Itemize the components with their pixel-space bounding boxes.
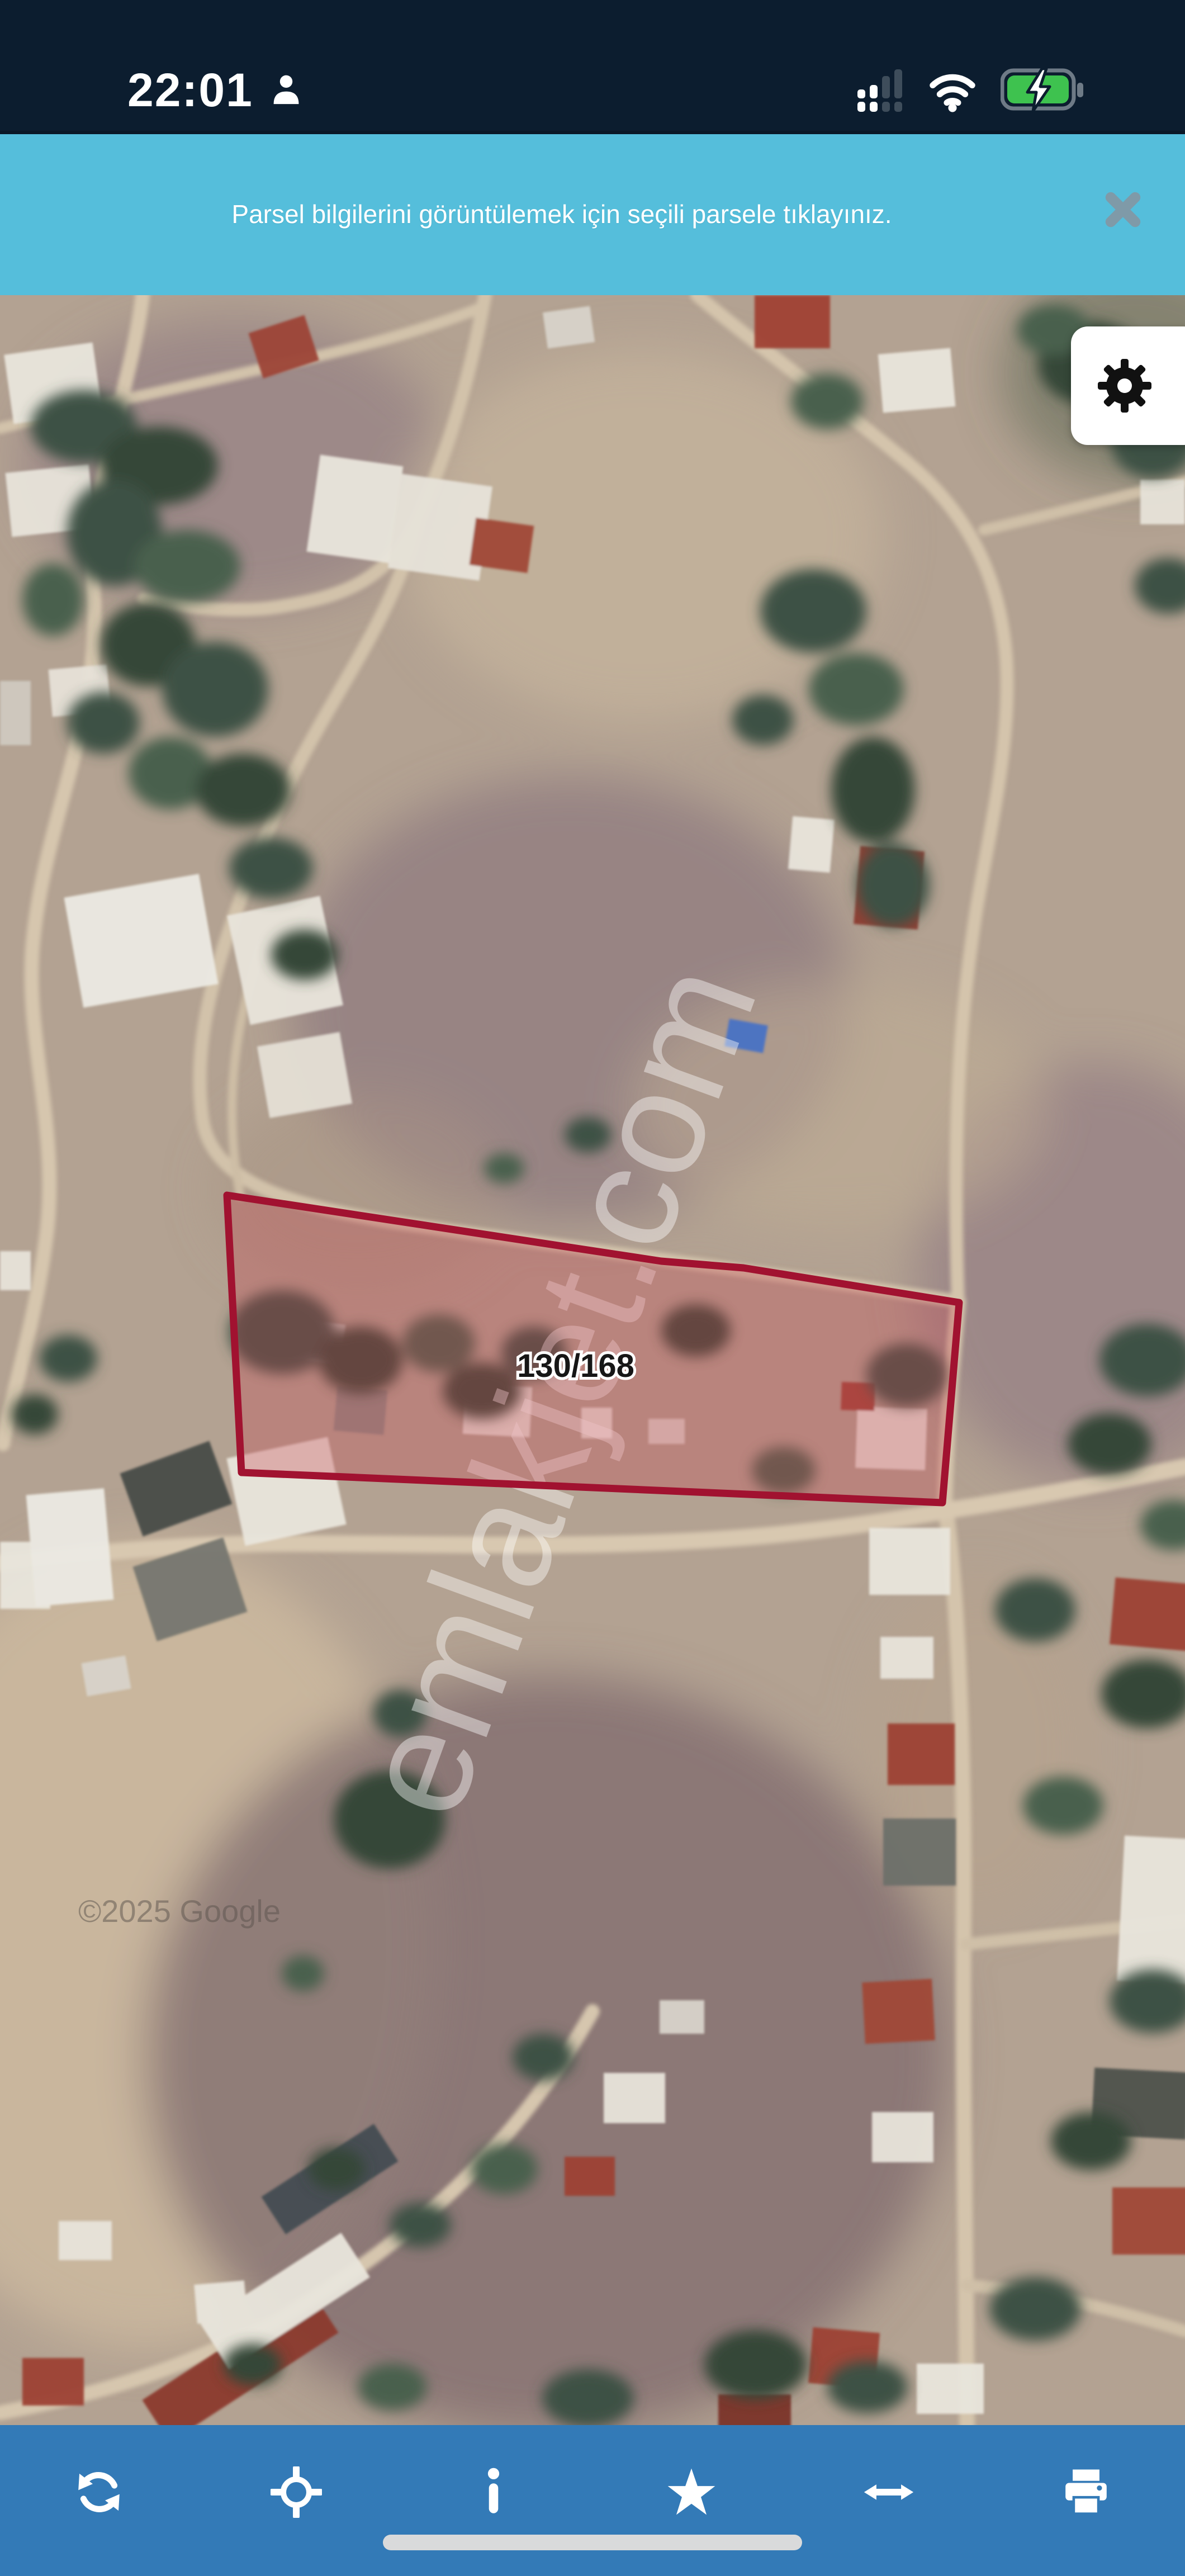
refresh-icon: [73, 2466, 125, 2518]
print-button[interactable]: [988, 2417, 1185, 2568]
satellite-map[interactable]: emlakjet.com 130/168 ©2025 Google: [0, 295, 1185, 2425]
banner-close-button[interactable]: [1101, 188, 1145, 231]
status-right-icons: [857, 64, 1084, 116]
gear-icon: [1097, 358, 1153, 414]
resize-horizontal-button[interactable]: [790, 2417, 987, 2568]
parcel-label: 130/168: [517, 1348, 634, 1384]
close-x-icon: [1101, 188, 1145, 231]
phone-screen: 22:01: [0, 0, 1185, 2576]
locate-button[interactable]: [197, 2417, 395, 2568]
banner-message: Parsel bilgilerini görüntülemek için seç…: [84, 198, 1040, 231]
map-canvas: emlakjet.com 130/168 ©2025 Google: [0, 295, 1185, 2425]
status-bar: 22:01: [0, 0, 1185, 134]
home-indicator[interactable]: [383, 2535, 802, 2550]
refresh-button[interactable]: [0, 2417, 197, 2568]
bottom-toolbar: [0, 2425, 1185, 2576]
favorite-star-icon: [666, 2466, 717, 2518]
wifi-icon: [929, 64, 976, 116]
resize-horizontal-icon: [863, 2466, 914, 2518]
print-icon: [1060, 2466, 1112, 2518]
map-attribution: ©2025 Google: [78, 1893, 281, 1929]
cellular-signal-icon: [857, 67, 904, 113]
locate-icon: [271, 2466, 322, 2518]
status-time: 22:01: [127, 67, 253, 113]
info-icon: [468, 2466, 519, 2518]
map-settings-button[interactable]: [1071, 326, 1185, 445]
user-icon: [268, 70, 305, 110]
battery-charging-icon: [1001, 68, 1084, 112]
parcel-info-banner: Parsel bilgilerini görüntülemek için seç…: [0, 134, 1185, 295]
